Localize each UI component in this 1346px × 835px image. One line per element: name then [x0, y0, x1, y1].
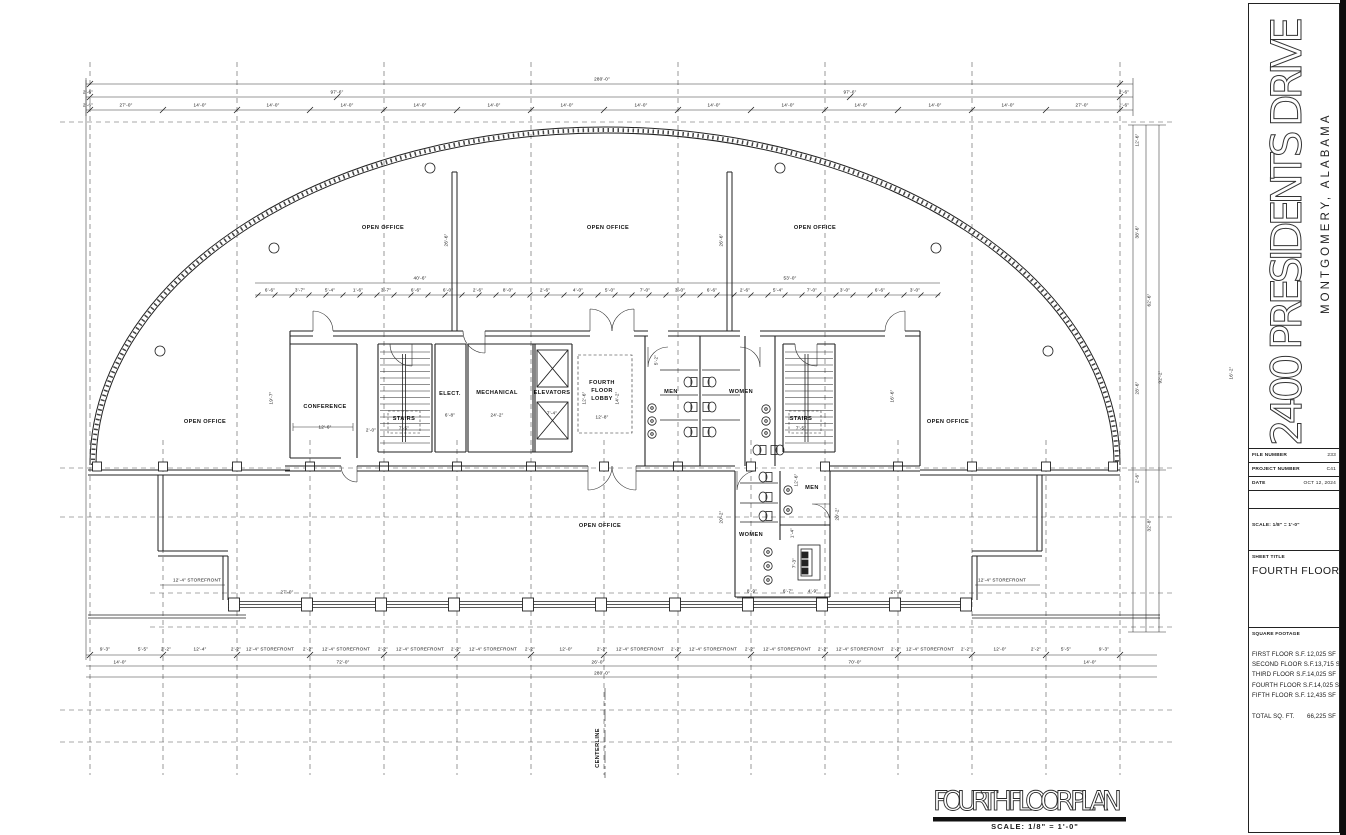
- dimension-label: 1'-6": [353, 289, 363, 294]
- dimension-label: 2'-2": [671, 648, 681, 653]
- title-block: 2400 PRESIDENTS DRIVE MONTGOMERY, ALABAM…: [1248, 3, 1340, 833]
- dimension-label: 14'-0": [635, 104, 648, 109]
- dimension-label: 12'-0": [994, 648, 1007, 653]
- sf-label: FIRST FLOOR S.F.: [1252, 651, 1306, 658]
- sf-value: 14,025 SF: [1314, 682, 1343, 689]
- dimension-label: 2'-2": [745, 648, 755, 653]
- dimension-label: 28'-6": [1136, 382, 1141, 395]
- square-footage-section: SQUARE FOOTAGE FIRST FLOOR S.F. 12,025 S…: [1249, 627, 1339, 830]
- dimension-label: 12'-4" STOREFRONT: [396, 648, 444, 653]
- room-label: WOMEN: [729, 390, 753, 396]
- square-footage-header: SQUARE FOOTAGE: [1252, 632, 1336, 637]
- project-number-value: C41: [1327, 467, 1336, 472]
- dimension-label: 12'-0": [560, 648, 573, 653]
- dimension-label: 2'-2": [597, 648, 607, 653]
- dimension-label: 32'-8": [1148, 519, 1153, 532]
- room-label: OPEN OFFICE: [927, 420, 969, 426]
- dimension-label: 5'-5": [1061, 648, 1071, 653]
- dimension-label: 8'-0": [503, 289, 513, 294]
- dimension-label: 14'-0": [1002, 104, 1015, 109]
- scale-section: SCALE: 1/8" = 1'-0": [1249, 508, 1339, 548]
- file-number-label: FILE NUMBER: [1252, 453, 1287, 458]
- dimension-label: 12'-4" STOREFRONT: [978, 579, 1026, 584]
- sf-row: THIRD FLOOR S.F. 14,025 SF: [1252, 671, 1336, 678]
- dimension-label: 27'-0": [281, 591, 294, 596]
- room-label: MEN: [664, 390, 678, 396]
- dimension-label: 6'-6": [875, 289, 885, 294]
- dimension-label: 3'-0": [910, 289, 920, 294]
- room-label: STAIRS: [393, 417, 416, 423]
- sf-total-label: TOTAL SQ. FT.: [1252, 713, 1295, 720]
- dimension-label: 3'-0": [840, 289, 850, 294]
- room-label: OPEN OFFICE: [579, 524, 621, 530]
- sheet-edge-bar: [1340, 0, 1346, 835]
- file-number-row: FILE NUMBER 233: [1249, 448, 1339, 462]
- dimension-label: 20'-2": [720, 511, 725, 524]
- dimension-label: 7'-3": [793, 558, 798, 568]
- dimension-label: 7'-0": [640, 289, 650, 294]
- dimension-label: 2'-6": [83, 91, 93, 96]
- sf-row: FOURTH FLOOR S.F. 14,025 SF: [1252, 682, 1336, 689]
- dimension-label: 4'-0": [573, 289, 583, 294]
- room-label: FOURTH: [589, 381, 615, 387]
- dimension-label: 4'-9": [808, 590, 818, 595]
- dimension-label: 12'-4" STOREFRONT: [836, 648, 884, 653]
- dimension-label: 53'-0": [784, 277, 797, 282]
- project-number-label: PROJECT NUMBER: [1252, 467, 1300, 472]
- dimension-label: 2'-2": [378, 648, 388, 653]
- dimension-label: 12'-4" STOREFRONT: [763, 648, 811, 653]
- room-label: OPEN OFFICE: [587, 226, 629, 232]
- room-label: OPEN OFFICE: [184, 420, 226, 426]
- dimension-label: 27'-0": [1076, 104, 1089, 109]
- dimension-label: 12'-4" STOREFRONT: [906, 648, 954, 653]
- room-label: CENTERLINE: [596, 728, 602, 768]
- dimension-label: 7'-0": [807, 289, 817, 294]
- drawing-scale-note: SCALE: 1/8" = 1'-0": [955, 822, 1115, 831]
- dimension-label: 12'-4" STOREFRONT: [322, 648, 370, 653]
- sf-value: 14,025 SF: [1307, 671, 1336, 678]
- dimension-label: 5'-5": [138, 648, 148, 653]
- room-label: WOMEN: [739, 533, 763, 539]
- date-value: OCT 12, 2024: [1304, 481, 1336, 486]
- dimension-label: 2'-2": [1031, 648, 1041, 653]
- dimension-label: 2'-2": [961, 648, 971, 653]
- dimension-label: 27'-0": [891, 591, 904, 596]
- dimension-label: 2'-6": [1119, 91, 1129, 96]
- project-address-block: 2400 PRESIDENTS DRIVE MONTGOMERY, ALABAM…: [1249, 4, 1337, 450]
- dimension-label: 9'-3": [100, 648, 110, 653]
- dimension-label: 38'-6": [1136, 226, 1141, 239]
- sf-label: FOURTH FLOOR S.F.: [1252, 682, 1314, 689]
- room-label: MEN: [805, 486, 819, 492]
- dimension-label: 20'-2": [836, 508, 841, 521]
- dimension-label: 12'-4" STOREFRONT: [469, 648, 517, 653]
- dimension-label: 7'-4": [547, 412, 557, 417]
- dimension-label: 14'-0": [114, 661, 127, 666]
- dimension-label: 97'-6": [331, 91, 344, 96]
- dimension-label: 6'-6": [707, 289, 717, 294]
- dimension-label: 14'-0": [561, 104, 574, 109]
- dimension-label: 2'-0": [366, 429, 376, 434]
- dimension-label: 72'-0": [337, 661, 350, 666]
- dimension-label: 12'-6": [319, 426, 332, 431]
- dimension-label: 12'-4" STOREFRONT: [689, 648, 737, 653]
- sf-label: THIRD FLOOR S.F.: [1252, 671, 1307, 678]
- dimension-label: 2'-2": [891, 648, 901, 653]
- dimension-label: 24'-2": [491, 414, 504, 419]
- dimension-label: 1'-4": [791, 528, 796, 538]
- dimension-label: 14'-0": [488, 104, 501, 109]
- sf-row: FIRST FLOOR S.F. 12,025 SF: [1252, 651, 1336, 658]
- sheet-title: FOURTH FLOOR PLAN: [1252, 565, 1336, 577]
- plan-labels-layer: OPEN OFFICEOPEN OFFICEOPEN OFFICEOPEN OF…: [0, 0, 1240, 835]
- dimension-label: 2'-6": [740, 289, 750, 294]
- sf-row: SECOND FLOOR S.F. 13,715 SF: [1252, 661, 1336, 668]
- dimension-label: 14'-0": [929, 104, 942, 109]
- sf-value: 12,025 SF: [1307, 651, 1336, 658]
- dimension-label: 14'-0": [708, 104, 721, 109]
- sheet-title-label: SHEET TITLE: [1252, 555, 1336, 560]
- room-label: FLOOR: [591, 389, 613, 395]
- dimension-label: 280'-0": [594, 78, 610, 83]
- dimension-label: 14'-0": [341, 104, 354, 109]
- dimension-label: 280'-0": [594, 672, 610, 677]
- dimension-label: 3'-7": [295, 289, 305, 294]
- dimension-label: 14'-0": [782, 104, 795, 109]
- dimension-label: 14'-0": [267, 104, 280, 109]
- room-label: OPEN OFFICE: [362, 226, 404, 232]
- dimension-label: 12'-4" STOREFRONT: [173, 579, 221, 584]
- dimension-label: 9'-3": [1099, 648, 1109, 653]
- dimension-label: 26'-6": [445, 234, 450, 247]
- dimension-label: 2'-6": [540, 289, 550, 294]
- sf-total-row: TOTAL SQ. FT. 66,225 SF: [1252, 713, 1336, 720]
- dimension-label: 5'-2": [655, 355, 660, 365]
- room-label: STAIRS: [790, 417, 813, 423]
- dimension-label: 2'-2": [451, 648, 461, 653]
- sheet-title-section: SHEET TITLE FOURTH FLOOR PLAN: [1249, 550, 1339, 625]
- room-label: MECHANICAL: [476, 391, 518, 397]
- dimension-label: 14'-0": [414, 104, 427, 109]
- dimension-label: 12'-8": [596, 416, 609, 421]
- date-label: DATE: [1252, 481, 1266, 486]
- dimension-label: 92'-2": [1159, 371, 1164, 384]
- dimension-label: 5'-0": [605, 289, 615, 294]
- room-label: ELECT.: [439, 392, 461, 398]
- room-label: OPEN OFFICE: [794, 226, 836, 232]
- room-label: ELEVATORS: [534, 391, 571, 397]
- dimension-label: 70'-0": [849, 661, 862, 666]
- dimension-label: 6'-7": [783, 590, 793, 595]
- scale-label: SCALE: 1/8" = 1'-0": [1252, 523, 1300, 528]
- dimension-label: 40'-6": [414, 277, 427, 282]
- dimension-label: 12'-6": [583, 392, 588, 405]
- dimension-label: 2'-2": [303, 648, 313, 653]
- room-label: LOBBY: [591, 397, 613, 403]
- dimension-label: 6'-8": [445, 414, 455, 419]
- dimension-label: 7'-5": [796, 427, 806, 432]
- dimension-label: 14'-0": [1084, 661, 1097, 666]
- dimension-label: 16'-6": [891, 390, 896, 403]
- sf-label: SECOND FLOOR S.F.: [1252, 661, 1315, 668]
- dimension-label: 62'-6": [1148, 294, 1153, 307]
- dimension-label: 2'-2": [818, 648, 828, 653]
- dimension-label: 26'-6": [720, 234, 725, 247]
- sf-label: FIFTH FLOOR S.F.: [1252, 692, 1306, 699]
- dimension-label: 27'-0": [120, 104, 133, 109]
- dimension-label: 14'-0": [194, 104, 207, 109]
- project-number-row: PROJECT NUMBER C41: [1249, 462, 1339, 476]
- sf-row: FIFTH FLOOR S.F. 12,435 SF: [1252, 692, 1336, 699]
- dimension-label: 12'-4" STOREFRONT: [616, 648, 664, 653]
- room-label: CONFERENCE: [303, 405, 346, 411]
- drawing-sheet: FOURTH FLOOR PLAN OPEN OFFICEOPEN OFFICE…: [0, 0, 1346, 835]
- file-number-value: 233: [1327, 453, 1336, 458]
- project-city: MONTGOMERY, ALABAMA: [1320, 114, 1332, 314]
- dimension-label: 14'-2": [616, 392, 621, 405]
- dimension-label: 12'-6": [795, 474, 800, 487]
- dimension-label: 16'-2": [1230, 367, 1235, 380]
- dimension-label: 2'-2": [525, 648, 535, 653]
- dimension-label: 5'-4": [773, 289, 783, 294]
- sf-value: 12,435 SF: [1307, 692, 1336, 699]
- dimension-label: 2'-6": [1136, 473, 1141, 483]
- dimension-label: 12'-4" STOREFRONT: [246, 648, 294, 653]
- dimension-label: 7'-5": [399, 427, 409, 432]
- dimension-label: 6'-6": [411, 289, 421, 294]
- dimension-label: 19'-7": [270, 392, 275, 405]
- project-address: 2400 PRESIDENTS DRIVE: [1262, 16, 1311, 446]
- dimension-label: 12'-4": [194, 648, 207, 653]
- dimension-label: 26'-0": [592, 661, 605, 666]
- dimension-label: 2'-6": [473, 289, 483, 294]
- dimension-label: 6'-6": [265, 289, 275, 294]
- dimension-label: 2'-2": [231, 648, 241, 653]
- dimension-label: 8'-9": [747, 590, 757, 595]
- spacer-row: [1249, 490, 1339, 508]
- dimension-label: 2'-6": [1119, 104, 1129, 109]
- sf-total-value: 66,225 SF: [1307, 713, 1336, 720]
- dimension-label: 97'-6": [844, 91, 857, 96]
- date-row: DATE OCT 12, 2024: [1249, 476, 1339, 490]
- dimension-label: 3'-0": [675, 289, 685, 294]
- dimension-label: 6'-0": [443, 289, 453, 294]
- dimension-label: 3'-7": [381, 289, 391, 294]
- dimension-label: 5'-4": [325, 289, 335, 294]
- dimension-label: 12'-6": [1136, 134, 1141, 147]
- dimension-label: 2'-6": [83, 104, 93, 109]
- dimension-label: 2'-2": [161, 648, 171, 653]
- dimension-label: 14'-0": [855, 104, 868, 109]
